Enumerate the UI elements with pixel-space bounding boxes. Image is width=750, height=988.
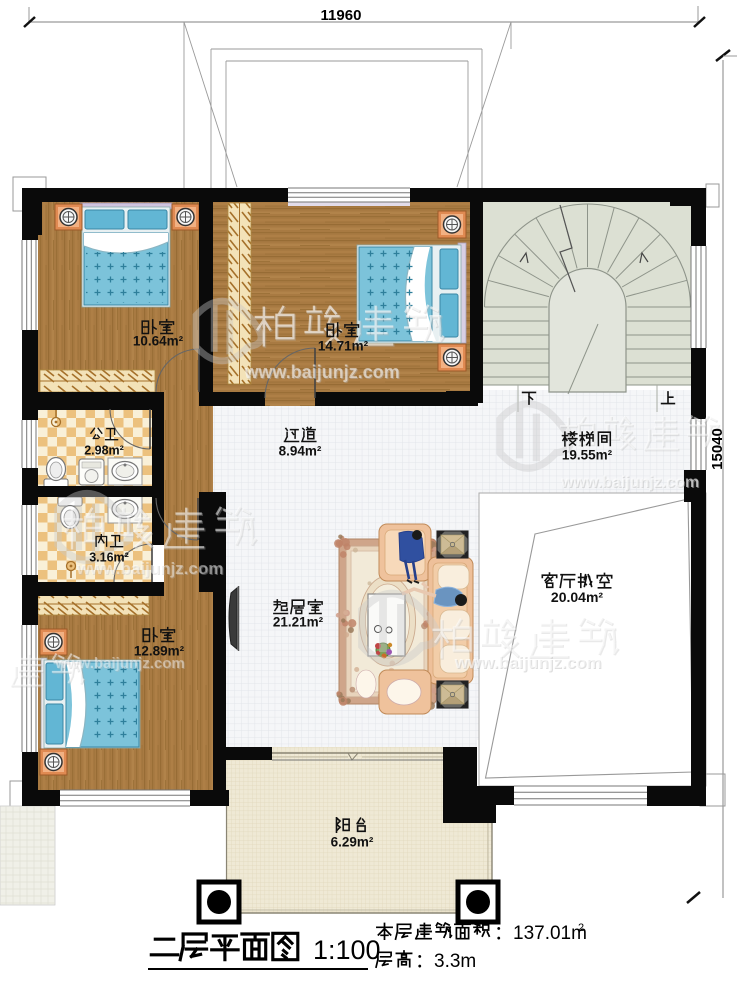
svg-text:www.baijunjz.com: www.baijunjz.com: [454, 653, 602, 672]
svg-text:19.55m²: 19.55m²: [562, 448, 613, 463]
svg-text:2.98m²: 2.98m²: [84, 443, 124, 457]
svg-text:14.71m²: 14.71m²: [318, 339, 369, 354]
svg-text:：137.01m: ：137.01m: [494, 923, 587, 944]
svg-text:20.04m²: 20.04m²: [551, 589, 603, 605]
svg-text:2: 2: [578, 922, 584, 934]
svg-text:3.16m²: 3.16m²: [89, 550, 129, 564]
svg-text:8.94m²: 8.94m²: [279, 444, 322, 459]
svg-text:21.21m²: 21.21m²: [273, 615, 324, 630]
svg-text:www.baijunjz.com: www.baijunjz.com: [243, 362, 399, 382]
svg-text:15040: 15040: [709, 428, 726, 470]
svg-text:12.89m²: 12.89m²: [134, 644, 185, 659]
svg-text:www.baijunjz.com: www.baijunjz.com: [560, 474, 699, 491]
svg-text:：3.3m: ：3.3m: [415, 951, 476, 972]
svg-text:6.29m²: 6.29m²: [331, 835, 374, 850]
svg-text:11960: 11960: [321, 7, 362, 24]
svg-text:10.64m²: 10.64m²: [133, 334, 184, 349]
svg-text:1:100: 1:100: [313, 935, 381, 965]
